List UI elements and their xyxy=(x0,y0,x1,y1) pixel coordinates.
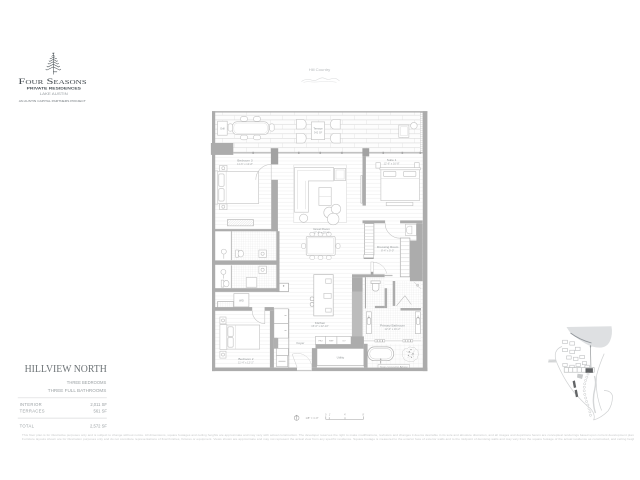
svg-text:1/8" = 1'-0": 1/8" = 1'-0" xyxy=(306,416,319,420)
svg-text:REF: REF xyxy=(329,341,334,343)
svg-text:0: 0 xyxy=(325,414,327,416)
svg-text:Bedroom 2: Bedroom 2 xyxy=(238,357,253,361)
svg-text:Bedroom 3: Bedroom 3 xyxy=(237,159,252,163)
svg-text:Foyer: Foyer xyxy=(296,341,304,345)
svg-text:FRZ: FRZ xyxy=(318,341,323,343)
svg-text:Terrace: Terrace xyxy=(313,127,323,131)
svg-text:8': 8' xyxy=(363,414,365,416)
svg-text:342 SF: 342 SF xyxy=(314,130,323,134)
svg-text:Primary Bathroom: Primary Bathroom xyxy=(380,324,405,328)
svg-text:Dressing Room: Dressing Room xyxy=(377,245,399,249)
svg-text:OV: OV xyxy=(342,341,346,343)
svg-text:8'-4" x 9'-0": 8'-4" x 9'-0" xyxy=(381,249,394,253)
svg-text:Utility: Utility xyxy=(337,355,345,359)
svg-text:Grill: Grill xyxy=(220,126,225,130)
svg-text:1': 1' xyxy=(329,414,331,416)
svg-text:15'-6" x 22'-10": 15'-6" x 22'-10" xyxy=(311,324,328,328)
svg-text:Great Room: Great Room xyxy=(313,227,330,231)
svg-text:11'-4" x 12'-2": 11'-4" x 12'-2" xyxy=(238,361,254,365)
svg-text:W/D: W/D xyxy=(239,300,244,303)
svg-text:Texas Crossvine Arbour: Texas Crossvine Arbour xyxy=(380,366,408,369)
svg-text:12'-6" x 16'-8": 12'-6" x 16'-8" xyxy=(384,161,400,165)
svg-text:4': 4' xyxy=(344,414,346,416)
svg-text:11'-6" x 12'-8": 11'-6" x 12'-8" xyxy=(237,162,253,166)
svg-text:17'-6" x 20'-4": 17'-6" x 20'-4" xyxy=(314,230,330,234)
svg-text:Kitchen: Kitchen xyxy=(315,321,326,325)
svg-text:Suite 1: Suite 1 xyxy=(387,158,397,162)
svg-text:12'-0" x 16'-2": 12'-0" x 16'-2" xyxy=(385,327,401,331)
